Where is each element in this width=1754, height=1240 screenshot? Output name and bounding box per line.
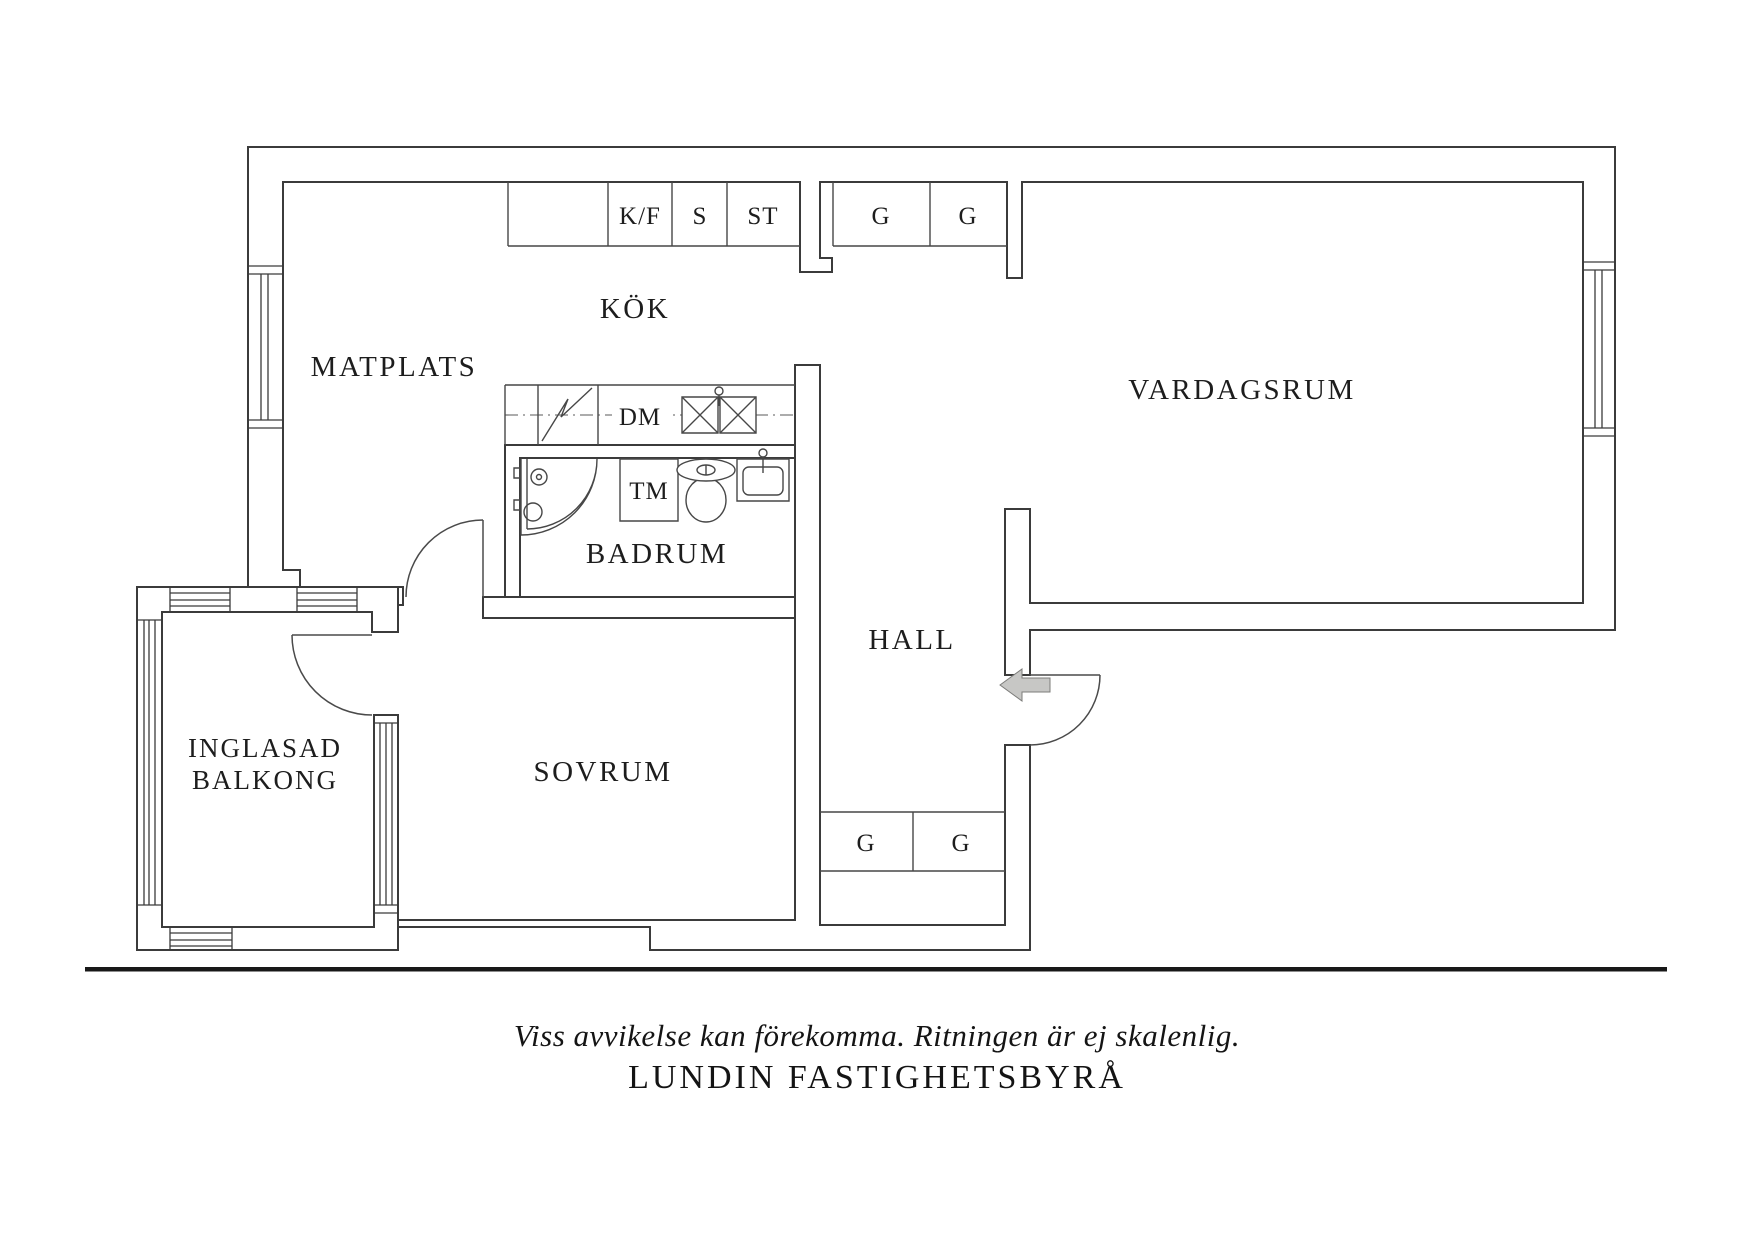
room-label-living-room: VARDAGSRUM: [1128, 374, 1356, 406]
room-label-balcony-line2: BALKONG: [192, 765, 338, 795]
toilet-bowl: [686, 478, 726, 522]
bathroom-sink: [737, 449, 789, 501]
entry-arrow-icon: [1000, 669, 1050, 701]
wardrobe-row-top: [833, 182, 1007, 246]
outer-wall-outline: [137, 147, 1615, 950]
floor-plan-drawing: MATPLATS KÖK VARDAGSRUM BADRUM HALL SOVR…: [0, 0, 1754, 1240]
entry-door: [1000, 669, 1100, 745]
room-label-kitchen: KÖK: [600, 293, 670, 325]
label-washing-machine: TM: [629, 478, 669, 505]
balcony-window-right: [374, 723, 398, 913]
balcony-window-top-left: [170, 587, 230, 612]
label-wardrobe-hall-2: G: [951, 830, 970, 857]
toilet: [677, 459, 735, 522]
bathroom-faucet-icon: [759, 449, 767, 457]
shower-glass: [521, 459, 597, 535]
shower-head-dot: [537, 475, 542, 480]
floor-plan-page: MATPLATS KÖK VARDAGSRUM BADRUM HALL SOVR…: [0, 0, 1754, 1240]
dining-window: [248, 266, 283, 428]
room-label-bedroom: SOVRUM: [533, 756, 672, 788]
footer-brand: LUNDIN FASTIGHETSBYRÅ: [628, 1059, 1126, 1096]
label-dishwasher: DM: [619, 404, 661, 431]
label-wardrobe-top-2: G: [958, 203, 977, 230]
label-cleaning-closet: ST: [747, 203, 778, 230]
ground-line: [85, 967, 1667, 972]
bedroom-door-swing: [406, 520, 483, 597]
label-fridge-freezer: K/F: [619, 203, 661, 230]
bedroom-door: [406, 520, 483, 597]
kitchen-faucet-icon: [715, 387, 723, 395]
label-pantry: S: [693, 203, 708, 230]
wardrobe-row-hall: [820, 812, 1005, 871]
livingroom-window: [1583, 262, 1615, 436]
footer-disclaimer: Viss avvikelse kan förekomma. Ritningen …: [514, 1018, 1240, 1053]
shower-head-icon: [531, 469, 547, 485]
label-wardrobe-top-1: G: [871, 203, 890, 230]
balcony-window-top-right: [297, 587, 357, 612]
label-wardrobe-hall-1: G: [856, 830, 875, 857]
bathroom-walls: [483, 445, 795, 618]
inner-wall-outline: [162, 182, 1583, 927]
room-label-balcony-line1: INGLASAD: [188, 733, 342, 763]
balcony-door-swing: [292, 635, 372, 715]
room-label-bathroom: BADRUM: [586, 538, 728, 570]
exterior-walls: [137, 147, 1615, 950]
shower: [514, 459, 597, 535]
balcony-window-left: [137, 620, 162, 905]
room-label-dining: MATPLATS: [311, 351, 478, 383]
balcony-window-bottom: [170, 927, 232, 950]
kitchen-sink: [682, 387, 756, 433]
room-label-hall: HALL: [868, 624, 955, 656]
balcony-door: [292, 635, 372, 715]
